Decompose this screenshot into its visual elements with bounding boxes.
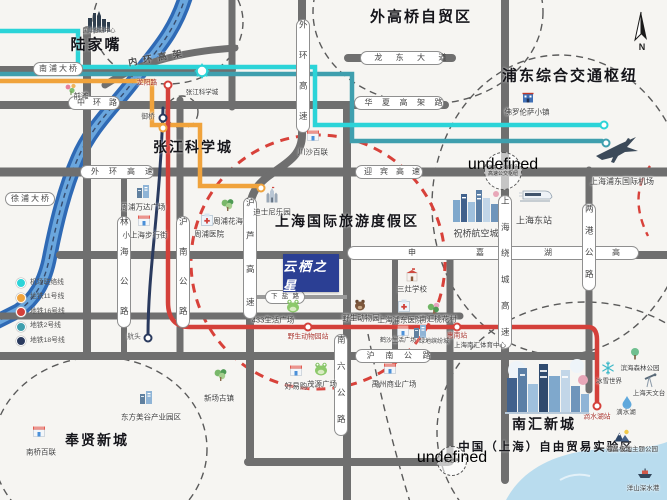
station-yuqiao-line18 <box>159 114 168 123</box>
poi-label-wild-animal-park: 野生动物园 <box>342 314 380 322</box>
hospital-icon <box>397 299 412 314</box>
poi-label-little-shanghai-street: 小上海步行街 <box>123 231 168 239</box>
station-longyang-road <box>164 81 173 90</box>
city-l-icon <box>503 356 591 414</box>
ship-icon <box>637 468 653 480</box>
hub-dazhihe-hub: undefined大治河 <box>437 446 467 476</box>
poi-label-dongfang-beauty-valley: 东方美谷产业园区 <box>121 413 181 421</box>
road-pill-nanpu-bridge: 南浦大桥 <box>33 62 83 76</box>
poi-label-greenland-binfen: 绿地缤纷城 <box>419 339 449 345</box>
region-label-pudong-transport-hub: 浦东综合交通枢纽 <box>502 69 638 84</box>
castle-icon <box>264 187 281 204</box>
poi-label-pudong-airport: 上海浦东国际机场 <box>590 178 654 186</box>
road-pill-hunan-highway-v: 沪南公路 <box>176 216 190 328</box>
legend-item-line11: 地铁11号线 <box>16 293 65 303</box>
location-map: 陆家嘴张江科学城外高桥自贸区浦东综合交通枢纽上海国际旅游度假区奉贤新城南汇新城中… <box>0 0 667 500</box>
region-label-neihuan-elevated: 内环高架 <box>128 48 189 67</box>
compass-north-label: N <box>639 42 646 52</box>
school-icon <box>405 268 420 283</box>
poi-label-haoyigou: 好易购 <box>285 382 308 390</box>
legend-label-line18: 地铁18号线 <box>30 338 65 345</box>
poi-label-dishui-lake: 滴水湖 <box>616 410 636 417</box>
hotel-icon <box>521 90 536 105</box>
station-yuqiao-line11 <box>159 124 168 133</box>
station-label-huinan-station: 惠南站 <box>447 334 467 341</box>
poi-label-lujiazui-subtitle: 国际金融中心 <box>82 29 115 35</box>
shop-icon <box>396 323 411 338</box>
poi-label-qiantan: 前滩 <box>74 92 89 100</box>
poi-label-zhuqiao-aviation-city: 祝桥航空城 <box>453 230 498 239</box>
station-hangtou <box>144 334 153 343</box>
hub-text-dazhihe-hub-0: 大治河 <box>444 458 459 464</box>
legend-label-line2: 地铁2号线 <box>30 323 61 330</box>
road-pill-xupu-bridge: 徐浦大桥 <box>5 192 55 206</box>
tree-icon <box>628 347 642 361</box>
shop-icon <box>306 128 321 143</box>
region-label-intl-tourism-resort: 上海国际旅游度假区 <box>275 215 419 229</box>
hub-airport-bus-hub: undefined浦东上海机场高速公交枢纽 <box>484 152 522 190</box>
station-zhangjiang-interchange <box>194 63 210 79</box>
poi-label-yuzhou-plaza: 禹州商业广场 <box>372 380 417 388</box>
poi-label-hesha-life-plaza: 鹤沙生活广场 <box>380 338 416 344</box>
bear-icon <box>353 298 368 313</box>
poi-label-nanhui-sports-center: 上海南汇体育中心 <box>454 343 506 350</box>
poi-label-plaza-433: 433生活广场 <box>252 316 295 324</box>
transit-legend: 机场联络线地铁11号线地铁16号线地铁2号线地铁18号线 <box>16 278 65 346</box>
frog-icon <box>285 298 301 314</box>
legend-label-line11: 地铁11号线 <box>30 294 64 301</box>
legend-dot-airport-link <box>16 278 26 288</box>
poi-label-haichang-polar-park: 海昌极地主题公园 <box>606 447 658 454</box>
scope-icon <box>643 373 659 389</box>
poi-label-shanghai-east-station: 上海东站 <box>516 217 552 226</box>
snow-icon <box>601 361 615 375</box>
station-label-hangtou: 航头 <box>127 335 141 342</box>
poi-label-ice-snow-world: 冰雪世界 <box>596 379 622 386</box>
station-wild-animal-park-station <box>304 323 313 332</box>
train-icon <box>519 187 553 205</box>
poi-label-xinchang-ancient-town: 新场古镇 <box>204 394 234 402</box>
legend-dot-line18 <box>16 336 26 346</box>
poi-label-disneyland: 迪士尼乐园 <box>253 208 291 216</box>
legend-item-airport-link: 机场联络线 <box>16 278 65 288</box>
poi-label-binhai-forest-park: 滨海森林公园 <box>621 366 660 373</box>
station-label-wild-animal-park-station: 野生动物园站 <box>288 335 329 342</box>
poi-label-zhoupu-wanda-plaza: 周浦万达广场 <box>121 203 166 211</box>
poi-label-taohua-village: 南汇桃花村 <box>419 315 457 323</box>
trees-icon <box>220 197 236 213</box>
poi-label-zhoupu-flower-sea: 周浦花海 <box>213 217 243 225</box>
road-pill-yingbin-expwy: 迎宾高速 <box>355 165 423 179</box>
region-label-nanhui-new-city: 南汇新城 <box>512 418 576 432</box>
legend-label-airport-link: 机场联络线 <box>30 280 64 287</box>
station-dishui-lake-station <box>593 402 602 411</box>
road-pill-outer-ring-expwy-v: 外环高速 <box>296 19 310 133</box>
legend-dot-line2 <box>16 322 26 332</box>
poi-label-yangshan-port: 洋山深水港 <box>627 486 660 493</box>
region-label-waigaoqiao-ftz: 外高桥自贸区 <box>370 10 472 25</box>
shop-icon <box>289 363 304 378</box>
region-label-zhangjiang-science-city: 张江科学城 <box>153 141 233 155</box>
mountain-icon <box>614 429 631 444</box>
road-pill-outer-ring-expwy-h: 外环高速 <box>80 165 154 179</box>
building-icon <box>135 183 151 199</box>
hub-text-airport-bus-hub-1: 高速公交枢纽 <box>488 171 518 177</box>
project-marker: 云栖之星 <box>283 254 339 292</box>
legend-item-line18: 地铁18号线 <box>16 336 65 346</box>
region-label-lujiazui: 陆家嘴 <box>70 38 121 53</box>
legend-dot-line16 <box>16 307 26 317</box>
road-pill-longdong-avenue: 龙东大道 <box>360 51 444 65</box>
region-label-fengxian-new-city: 奉贤新城 <box>65 434 129 448</box>
plane-icon <box>594 136 638 166</box>
frog-icon <box>313 361 329 377</box>
legend-item-line2: 地铁2号线 <box>16 322 65 332</box>
poi-label-zhoupu-hospital: 周浦医院 <box>194 230 224 238</box>
poi-label-nanqiao-bailian: 南桥百联 <box>26 448 56 456</box>
legend-item-line16: 地铁16号线 <box>16 307 65 317</box>
city-m-icon <box>452 188 500 222</box>
shop-icon <box>32 424 47 439</box>
shop-icon <box>137 213 152 228</box>
poi-label-chuansha-bailian: 川沙百联 <box>298 148 328 156</box>
building-icon <box>138 389 154 405</box>
project-name: 云栖之星 <box>283 256 339 294</box>
station-huinan-station <box>453 323 462 332</box>
station-label-dishui-lake-station: 滴水湖站 <box>583 415 610 422</box>
poi-label-shanghai-observatory: 上海天文台 <box>633 391 666 398</box>
poi-label-sanzao-school: 三灶学校 <box>397 285 427 293</box>
drop-icon <box>621 395 633 409</box>
poi-label-zhangjiang-station-label: 张江科学城 <box>186 90 219 97</box>
legend-label-line16: 地铁16号线 <box>30 309 65 316</box>
building-icon <box>412 323 428 339</box>
station-airport-link-terminal <box>600 121 609 130</box>
poi-label-maoyuan-plaza: 茂源广场 <box>307 380 337 388</box>
poi-label-florentia-village: 佛罗伦萨小镇 <box>505 108 550 116</box>
trees-icon <box>213 367 229 383</box>
shop-icon <box>383 361 398 376</box>
station-label-longyang-road: 龙阳路 <box>137 81 157 88</box>
map-label-layer: 陆家嘴张江科学城外高桥自贸区浦东综合交通枢纽上海国际旅游度假区奉贤新城南汇新城中… <box>0 0 667 500</box>
road-pill-huaxia-elevated-road: 华夏高架路 <box>354 96 444 110</box>
legend-dot-line11 <box>16 293 26 303</box>
station-label-yuqiao-line18: 御桥 <box>141 115 155 122</box>
road-pill-lianggang-highway: 两港公路 <box>582 203 596 291</box>
road-pill-raocheng-expwy: 上海绕城高速 <box>498 195 512 349</box>
